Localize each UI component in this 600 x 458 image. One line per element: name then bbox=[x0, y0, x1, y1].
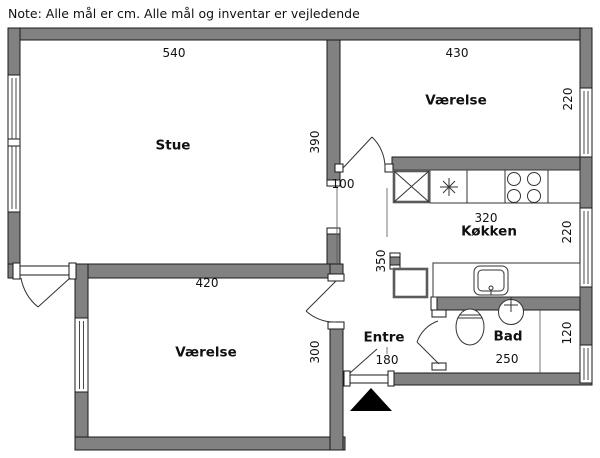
door-bad bbox=[417, 321, 439, 364]
dim-bad-depth: 120 bbox=[561, 322, 573, 345]
floor-plan: Note: Alle mål er cm. Alle mål og invent… bbox=[0, 0, 600, 458]
wall-vaerelse2-west-a bbox=[75, 264, 88, 318]
door-vaerelse-bottom bbox=[306, 281, 336, 322]
window-koekken-east bbox=[580, 208, 592, 287]
toilet-icon bbox=[456, 309, 484, 345]
room-label-stue: Stue bbox=[156, 139, 191, 153]
window-vaerelse2-west bbox=[75, 318, 88, 392]
room-label-bad: Bad bbox=[493, 330, 522, 344]
wall-south-right-b bbox=[390, 373, 592, 385]
kitchen-sink-icon bbox=[474, 266, 508, 295]
dim-hall-depth: 350 bbox=[375, 250, 387, 273]
wall-east-a bbox=[580, 28, 592, 88]
dim-koekken-width: 320 bbox=[475, 212, 498, 224]
room-label-vaerelse-bottom: Værelse bbox=[175, 346, 237, 360]
wall-north bbox=[8, 28, 592, 40]
dim-stue-depth: 390 bbox=[309, 131, 321, 154]
refrigerator-icon bbox=[394, 171, 429, 202]
wall-east-b bbox=[580, 157, 592, 208]
dim-vaerelse-top-width: 430 bbox=[446, 47, 469, 59]
door-stue-exterior bbox=[21, 278, 70, 307]
entrance-triangle-icon bbox=[350, 388, 392, 411]
wall-east-c bbox=[580, 287, 592, 345]
window-stue-west bbox=[8, 75, 20, 212]
wall-entre-west-a bbox=[330, 264, 343, 274]
window-bad-east bbox=[580, 345, 592, 383]
door-vaerelse-top bbox=[343, 137, 385, 168]
wall-stue-east-b bbox=[327, 233, 340, 264]
window-vaerelse1-east bbox=[580, 88, 592, 157]
dim-bad-width: 250 bbox=[496, 353, 519, 365]
wall-entre-west-b bbox=[330, 329, 343, 450]
wall-vaerelse1-south bbox=[392, 157, 580, 170]
dim-vaerelse-bottom-width: 420 bbox=[196, 277, 219, 289]
dim-entre-door: 180 bbox=[376, 354, 399, 366]
room-label-entre: Entre bbox=[363, 331, 404, 345]
sill-stue-exterior-door bbox=[20, 266, 69, 275]
dim-stue-width: 540 bbox=[163, 47, 186, 59]
dim-vaerelse-top-depth: 220 bbox=[562, 88, 574, 111]
wall-stue-south-a bbox=[8, 264, 13, 278]
plan-note: Note: Alle mål er cm. Alle mål og invent… bbox=[8, 6, 360, 21]
sill-front-door bbox=[350, 375, 388, 383]
dim-koekken-depth: 220 bbox=[561, 221, 573, 244]
wall-vaerelse2-south bbox=[75, 437, 345, 450]
wall-west-upper bbox=[8, 28, 20, 75]
room-label-vaerelse-top: Værelse bbox=[425, 94, 487, 108]
wall-stue-east-a bbox=[327, 40, 340, 180]
cabinet-icon bbox=[394, 269, 427, 297]
dim-passage-width: 100 bbox=[332, 178, 355, 190]
dim-vaerelse-bottom-depth: 300 bbox=[309, 341, 321, 364]
room-label-koekken: Køkken bbox=[461, 225, 517, 239]
